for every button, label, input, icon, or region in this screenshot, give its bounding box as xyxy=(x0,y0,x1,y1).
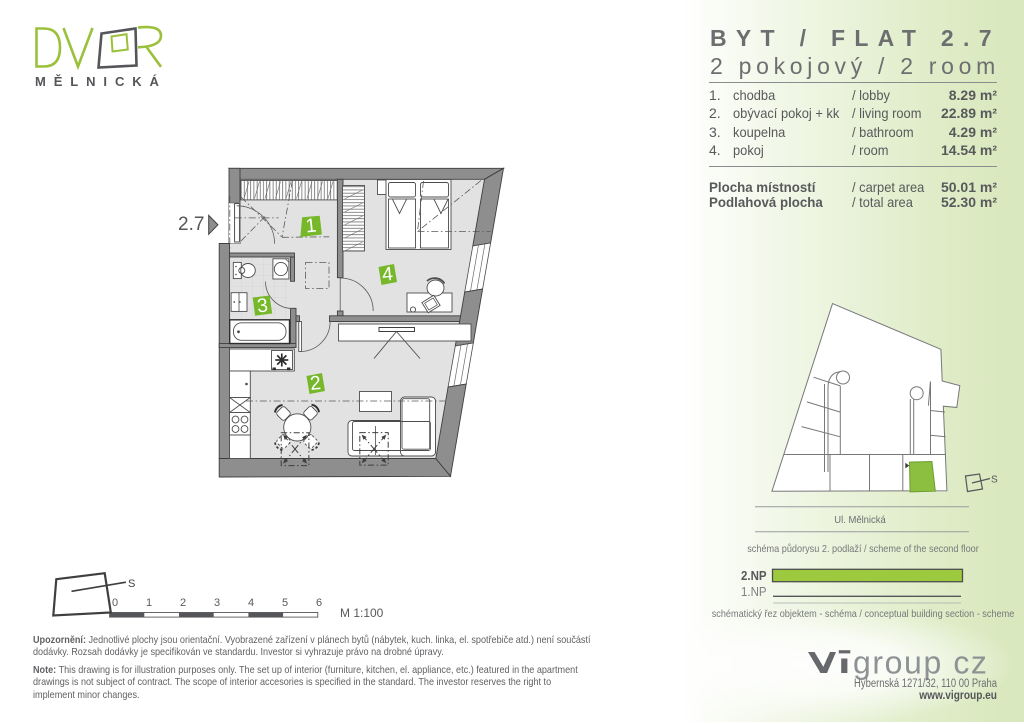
svg-text:1: 1 xyxy=(305,214,318,237)
svg-text:3: 3 xyxy=(256,294,269,317)
svg-text:S: S xyxy=(991,475,998,486)
svg-text:S: S xyxy=(128,578,135,590)
svg-text:group cz: group cz xyxy=(853,646,989,680)
svg-text:2: 2 xyxy=(309,372,322,395)
